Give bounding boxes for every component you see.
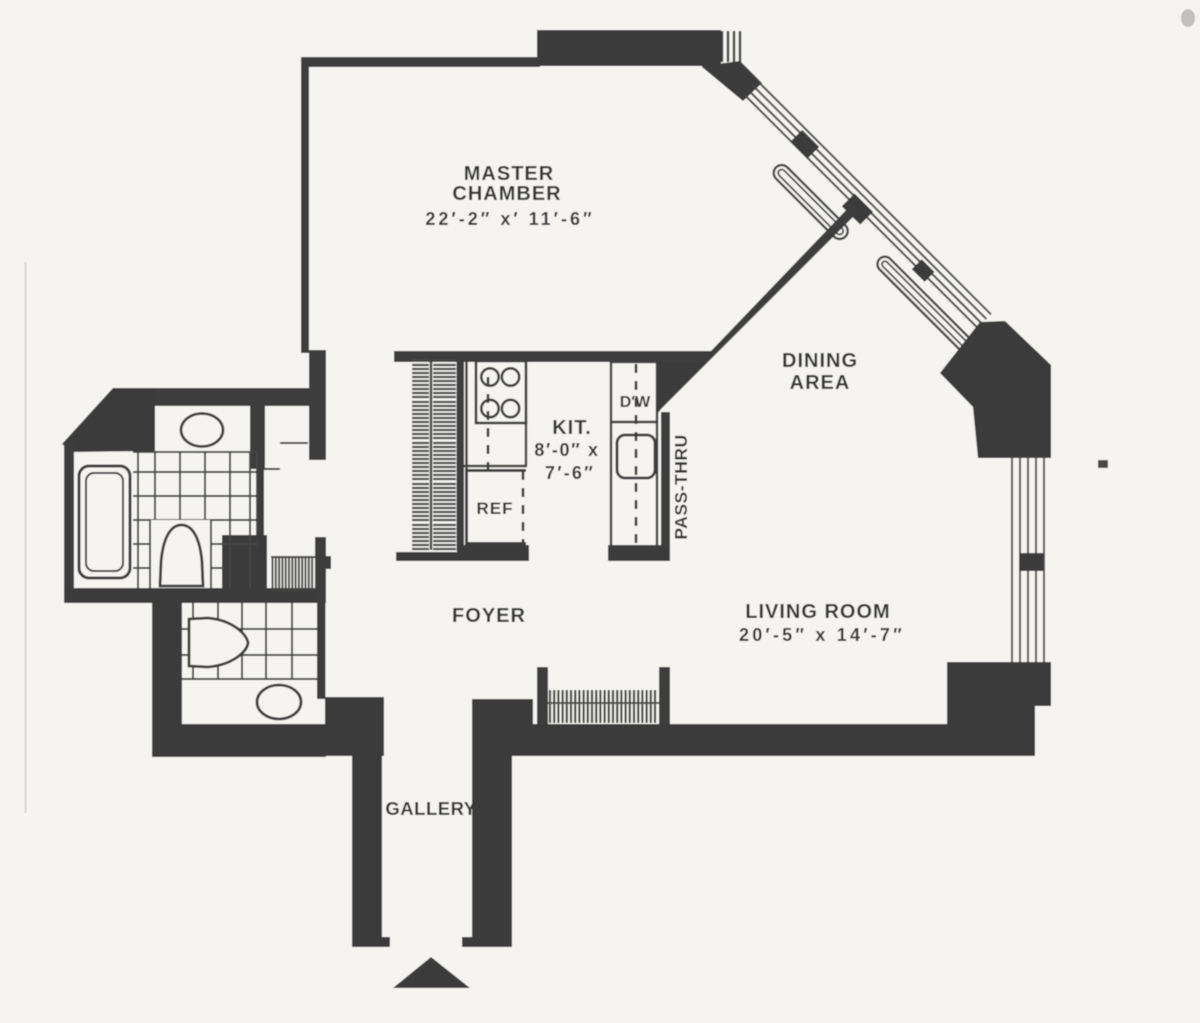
svg-text:REF: REF — [477, 499, 514, 518]
svg-text:7′-6″: 7′-6″ — [545, 463, 595, 483]
svg-text:DINING: DINING — [782, 350, 858, 372]
svg-text:20′-5″ x 14′-7″: 20′-5″ x 14′-7″ — [739, 625, 905, 645]
svg-text:AREA: AREA — [790, 372, 851, 394]
svg-text:CHAMBER: CHAMBER — [452, 183, 561, 205]
svg-text:MASTER: MASTER — [464, 163, 554, 185]
svg-text:LIVING ROOM: LIVING ROOM — [745, 601, 890, 623]
svg-text:8′-0″ x: 8′-0″ x — [534, 440, 599, 460]
svg-text:GALLERY: GALLERY — [385, 798, 476, 819]
svg-text:PASS-THRU: PASS-THRU — [671, 434, 691, 539]
svg-text:KIT.: KIT. — [552, 417, 592, 439]
svg-text:FOYER: FOYER — [452, 605, 526, 627]
svg-text:22′-2″ x′ 11′-6″: 22′-2″ x′ 11′-6″ — [425, 209, 594, 229]
